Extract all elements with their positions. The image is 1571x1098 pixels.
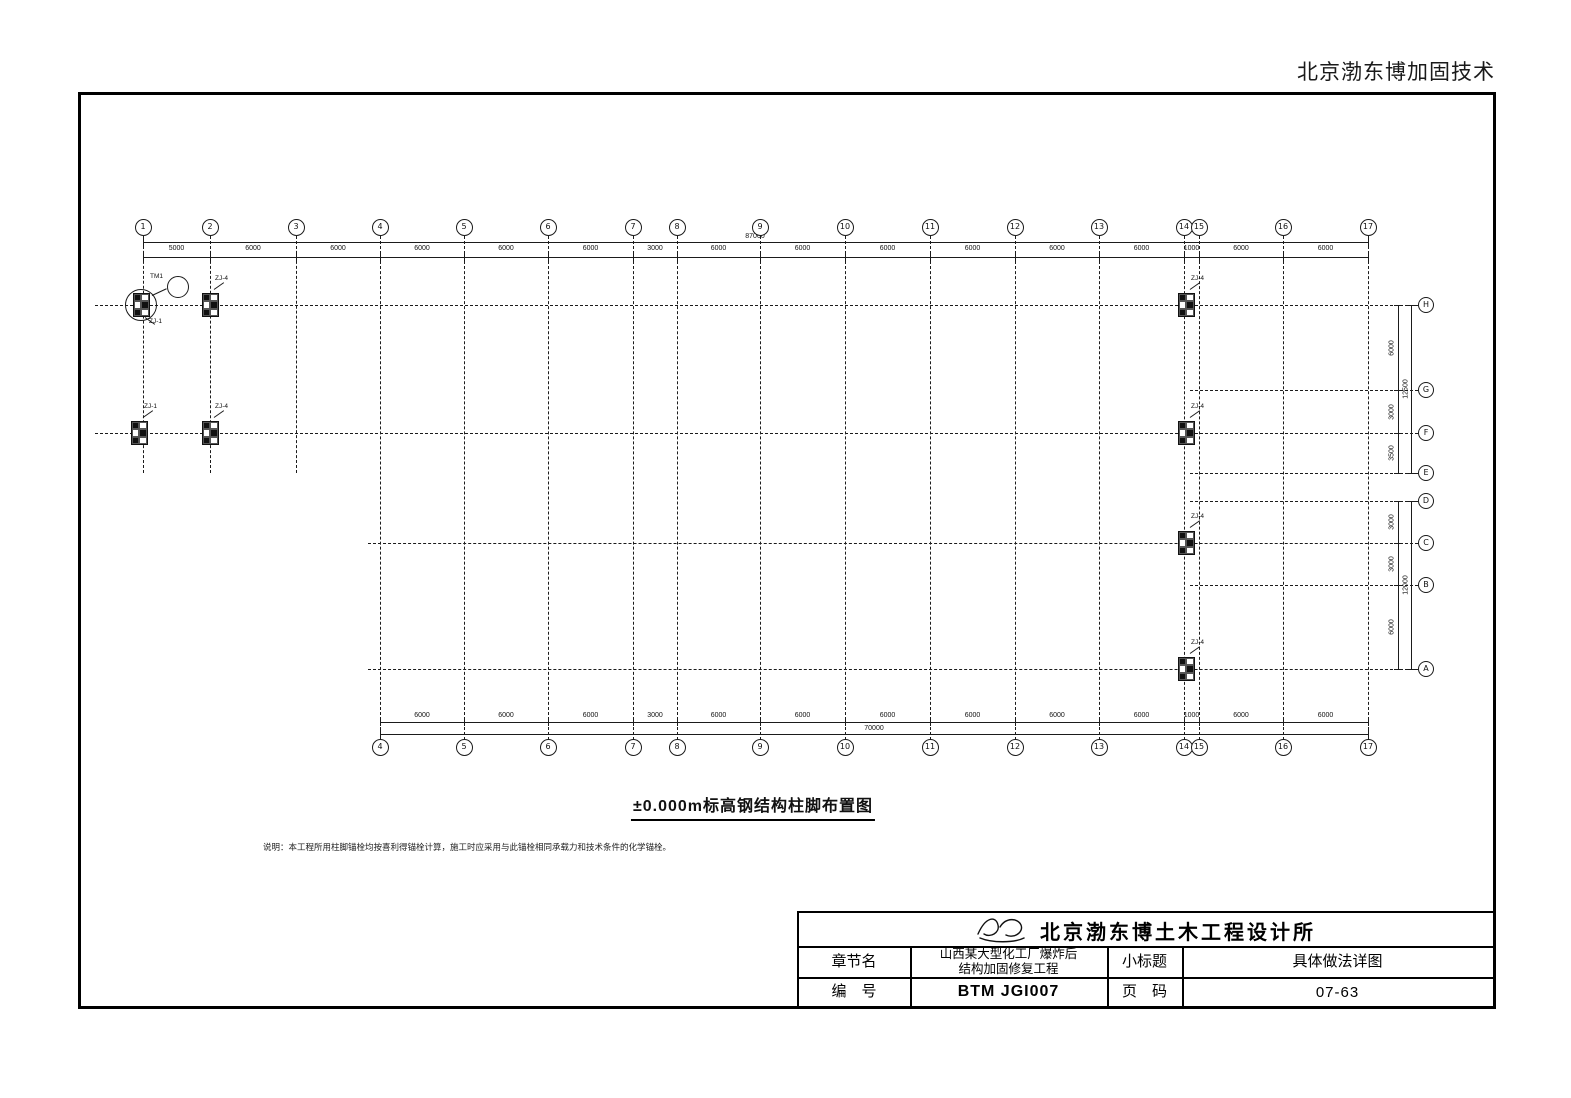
grid-bubble-row-B: B bbox=[1418, 577, 1434, 593]
base-plate-cell bbox=[1179, 665, 1187, 672]
titleblock-number-label: 编 号 bbox=[799, 978, 909, 1006]
right-dim-lower-tick bbox=[1394, 543, 1402, 544]
grid-bubble-top-2: 2 bbox=[202, 219, 219, 236]
grid-bubble-row-E: E bbox=[1418, 465, 1434, 481]
grid-line-row-D bbox=[1190, 501, 1418, 502]
base-plate-cell bbox=[1186, 301, 1194, 308]
grid-bubble-bottom-10: 10 bbox=[837, 739, 854, 756]
base-plate-cell bbox=[1179, 539, 1187, 546]
grid-bubble-bottom-16: 16 bbox=[1275, 739, 1292, 756]
base-plate-cell bbox=[203, 429, 211, 436]
base-plate-cell bbox=[1179, 658, 1187, 665]
bottom-dim-segment-line bbox=[380, 722, 1368, 723]
bottom-dim-tick bbox=[677, 718, 678, 726]
bottom-dim-tick bbox=[930, 718, 931, 726]
grid-line-column-12 bbox=[1015, 236, 1016, 740]
right-dim-upper-tick bbox=[1394, 305, 1402, 306]
grid-bubble-top-3: 3 bbox=[288, 219, 305, 236]
base-plate-cell bbox=[203, 309, 211, 316]
right-dim-upper-total-line bbox=[1411, 305, 1412, 473]
base-plate-cell bbox=[1186, 422, 1194, 429]
grid-line-column-11 bbox=[930, 236, 931, 740]
top-dim-tick bbox=[1283, 253, 1284, 261]
top-dim-end-tick bbox=[1368, 238, 1369, 246]
project-line-1: 山西某大型化工厂爆炸后 bbox=[940, 947, 1078, 962]
grid-line-column-16 bbox=[1283, 236, 1284, 740]
right-dim-lower-total-label: 12000 bbox=[1403, 575, 1410, 594]
grid-bubble-bottom-11: 11 bbox=[922, 739, 939, 756]
grid-bubble-top-10: 10 bbox=[837, 219, 854, 236]
base-plate-cell bbox=[1186, 294, 1194, 301]
grid-line-column-13 bbox=[1099, 236, 1100, 740]
top-dim-tick bbox=[930, 253, 931, 261]
top-dim-segment-label: 6000 bbox=[498, 245, 514, 252]
drawing-title: ±0.000m标高钢结构柱脚布置图 bbox=[631, 792, 875, 821]
base-plate-cell bbox=[203, 294, 211, 301]
base-plate-cell bbox=[1179, 547, 1187, 554]
grid-bubble-top-7: 7 bbox=[625, 219, 642, 236]
right-dim-lower-segment-label: 3000 bbox=[1389, 556, 1396, 572]
top-dim-segment-label: 1000 bbox=[1184, 245, 1200, 252]
titleblock-top-line bbox=[797, 911, 1493, 913]
top-dim-segment-label: 6000 bbox=[965, 245, 981, 252]
base-plate-cell bbox=[1186, 532, 1194, 539]
grid-line-column-5 bbox=[464, 236, 465, 740]
titleblock-page-label: 页 码 bbox=[1109, 978, 1180, 1006]
grid-bubble-top-5: 5 bbox=[456, 219, 473, 236]
grid-bubble-row-C: C bbox=[1418, 535, 1434, 551]
base-plate-cell bbox=[132, 437, 140, 444]
right-dim-upper-end-tick bbox=[1407, 473, 1415, 474]
grid-bubble-bottom-6: 6 bbox=[540, 739, 557, 756]
right-dim-upper-tick bbox=[1394, 433, 1402, 434]
base-plate-cell bbox=[1186, 539, 1194, 546]
grid-bubble-bottom-4: 4 bbox=[372, 739, 389, 756]
bottom-dim-segment-label: 6000 bbox=[711, 712, 727, 719]
bottom-dim-segment-label: 6000 bbox=[795, 712, 811, 719]
column-base-plate bbox=[1178, 293, 1195, 317]
grid-line-row-B bbox=[1190, 585, 1418, 586]
top-dim-segment-label: 6000 bbox=[880, 245, 896, 252]
bottom-dim-tick bbox=[1368, 718, 1369, 726]
grid-bubble-top-9: 9 bbox=[752, 219, 769, 236]
right-dim-lower-end-tick bbox=[1407, 669, 1415, 670]
plate-label: ZJ-4 bbox=[1191, 514, 1204, 521]
top-dim-tick bbox=[677, 253, 678, 261]
right-dim-lower-segment-label: 3000 bbox=[1389, 514, 1396, 530]
right-dim-upper-tick bbox=[1394, 473, 1402, 474]
project-line-2: 结构加固修复工程 bbox=[940, 962, 1078, 977]
plate-label: ZJ-1 bbox=[149, 319, 162, 326]
grid-line-column-8 bbox=[677, 236, 678, 740]
base-plate-cell bbox=[1186, 658, 1194, 665]
grid-bubble-row-D: D bbox=[1418, 493, 1434, 509]
right-dim-lower-total-line bbox=[1411, 501, 1412, 669]
bottom-dim-segment-label: 6000 bbox=[414, 712, 430, 719]
bottom-dim-tick bbox=[1283, 718, 1284, 726]
base-plate-cell bbox=[1186, 547, 1194, 554]
column-base-plate bbox=[202, 293, 219, 317]
grid-line-column-15 bbox=[1199, 236, 1200, 740]
column-base-plate bbox=[1178, 531, 1195, 555]
top-dim-tick bbox=[760, 253, 761, 261]
top-dim-segment-label: 6000 bbox=[583, 245, 599, 252]
grid-bubble-bottom-9: 9 bbox=[752, 739, 769, 756]
bottom-dim-tick bbox=[464, 718, 465, 726]
right-dim-upper-segment-label: 3000 bbox=[1389, 404, 1396, 420]
grid-line-column-6 bbox=[548, 236, 549, 740]
detail-callout-tag: TM1 bbox=[150, 274, 163, 281]
base-plate-cell bbox=[1186, 665, 1194, 672]
base-plate-cell bbox=[203, 301, 211, 308]
titleblock-project-name: 山西某大型化工厂爆炸后 结构加固修复工程 bbox=[912, 946, 1105, 977]
right-dim-upper-segment-label: 3500 bbox=[1389, 445, 1396, 461]
signature-logo bbox=[972, 912, 1034, 944]
base-plate-cell bbox=[210, 422, 218, 429]
top-dim-tick bbox=[464, 253, 465, 261]
base-plate-cell bbox=[1186, 309, 1194, 316]
titleblock-subtitle-value: 具体做法详图 bbox=[1184, 948, 1491, 976]
grid-bubble-row-A: A bbox=[1418, 661, 1434, 677]
titleblock-company-name: 北京渤东博土木工程设计所 bbox=[1040, 916, 1316, 945]
column-base-plate bbox=[1178, 421, 1195, 445]
base-plate-cell bbox=[139, 437, 147, 444]
top-dim-segment-label: 6000 bbox=[330, 245, 346, 252]
bottom-dim-segment-label: 6000 bbox=[1134, 712, 1150, 719]
drawing-note: 说明：本工程所用柱脚锚栓均按喜利得锚栓计算，施工时应采用与此锚栓相同承载力和技术… bbox=[263, 842, 671, 852]
base-plate-cell bbox=[1186, 437, 1194, 444]
base-plate-cell bbox=[1179, 422, 1187, 429]
grid-bubble-top-15: 15 bbox=[1191, 219, 1208, 236]
grid-bubble-top-13: 13 bbox=[1091, 219, 1108, 236]
top-dim-tick bbox=[1368, 253, 1369, 261]
base-plate-cell bbox=[210, 294, 218, 301]
bottom-dim-tick bbox=[380, 718, 381, 726]
base-plate-cell bbox=[210, 437, 218, 444]
grid-bubble-bottom-17: 17 bbox=[1360, 739, 1377, 756]
base-plate-cell bbox=[1186, 429, 1194, 436]
right-dim-upper-segment-line bbox=[1398, 305, 1399, 473]
base-plate-cell bbox=[210, 309, 218, 316]
right-dim-upper-end-tick bbox=[1407, 305, 1415, 306]
top-dim-end-tick bbox=[143, 238, 144, 246]
grid-line-column-10 bbox=[845, 236, 846, 740]
top-dim-tick bbox=[845, 253, 846, 261]
top-dim-segment-label: 6000 bbox=[795, 245, 811, 252]
base-plate-cell bbox=[1179, 294, 1187, 301]
base-plate-cell bbox=[132, 422, 140, 429]
top-dim-segment-label: 6000 bbox=[1233, 245, 1249, 252]
grid-bubble-bottom-5: 5 bbox=[456, 739, 473, 756]
right-dim-lower-tick bbox=[1394, 501, 1402, 502]
base-plate-cell bbox=[139, 429, 147, 436]
detail-callout-circle bbox=[167, 276, 189, 298]
top-dim-tick bbox=[1199, 253, 1200, 261]
top-dim-segment-label: 6000 bbox=[1318, 245, 1334, 252]
bottom-dim-total-label: 70000 bbox=[864, 725, 883, 732]
top-dim-segment-label: 5000 bbox=[169, 245, 185, 252]
titleblock-subtitle-label: 小标题 bbox=[1109, 948, 1180, 976]
grid-bubble-bottom-14: 14 bbox=[1176, 739, 1193, 756]
bottom-dim-tick bbox=[1015, 718, 1016, 726]
base-plate-cell bbox=[203, 422, 211, 429]
top-dim-segment-label: 6000 bbox=[1134, 245, 1150, 252]
grid-bubble-bottom-8: 8 bbox=[669, 739, 686, 756]
grid-bubble-top-6: 6 bbox=[540, 219, 557, 236]
top-dim-tick bbox=[143, 253, 144, 261]
titleblock-number-value: BTM JGI007 bbox=[912, 978, 1105, 1006]
top-dim-tick bbox=[1184, 253, 1185, 261]
base-plate-cell bbox=[203, 437, 211, 444]
bottom-dim-end-tick bbox=[380, 730, 381, 738]
bottom-dim-segment-label: 6000 bbox=[1318, 712, 1334, 719]
column-base-plate bbox=[1178, 657, 1195, 681]
top-dim-tick bbox=[210, 253, 211, 261]
top-dim-total-line bbox=[143, 242, 1368, 243]
bottom-dim-tick bbox=[1184, 718, 1185, 726]
base-plate-cell bbox=[1179, 673, 1187, 680]
grid-line-column-3 bbox=[296, 236, 297, 473]
grid-bubble-top-11: 11 bbox=[922, 219, 939, 236]
column-base-plate bbox=[131, 421, 148, 445]
top-dim-tick bbox=[1099, 253, 1100, 261]
plate-label: ZJ-4 bbox=[215, 276, 228, 283]
top-dim-segment-label: 3000 bbox=[647, 245, 663, 252]
right-dim-upper-tick bbox=[1394, 390, 1402, 391]
plate-label-leader bbox=[214, 282, 224, 290]
base-plate-cell bbox=[210, 429, 218, 436]
top-dim-segment-label: 6000 bbox=[245, 245, 261, 252]
plate-label-leader bbox=[143, 410, 153, 418]
column-base-plate bbox=[202, 421, 219, 445]
top-dim-tick bbox=[548, 253, 549, 261]
base-plate-cell bbox=[1179, 532, 1187, 539]
grid-line-row-G bbox=[1190, 390, 1418, 391]
grid-line-row-A bbox=[368, 669, 1418, 670]
right-dim-upper-segment-label: 6000 bbox=[1389, 340, 1396, 356]
bottom-dim-tick bbox=[1099, 718, 1100, 726]
plan-drawing: 1234455667788991010111112121313141415151… bbox=[0, 0, 1571, 1098]
top-dim-segment-label: 6000 bbox=[414, 245, 430, 252]
bottom-dim-segment-label: 3000 bbox=[647, 712, 663, 719]
grid-bubble-top-4: 4 bbox=[372, 219, 389, 236]
grid-bubble-top-12: 12 bbox=[1007, 219, 1024, 236]
bottom-dim-segment-label: 6000 bbox=[965, 712, 981, 719]
bottom-dim-total-line bbox=[380, 734, 1368, 735]
bottom-dim-tick bbox=[760, 718, 761, 726]
bottom-dim-tick bbox=[845, 718, 846, 726]
right-dim-upper-total-label: 12500 bbox=[1403, 379, 1410, 398]
titleblock-page-value: 07-63 bbox=[1184, 978, 1491, 1006]
bottom-dim-end-tick bbox=[1368, 730, 1369, 738]
base-plate-cell bbox=[132, 429, 140, 436]
grid-bubble-top-17: 17 bbox=[1360, 219, 1377, 236]
grid-line-column-9 bbox=[760, 236, 761, 740]
right-dim-lower-end-tick bbox=[1407, 501, 1415, 502]
right-dim-lower-tick bbox=[1394, 585, 1402, 586]
right-dim-lower-segment-label: 6000 bbox=[1389, 619, 1396, 635]
bottom-dim-segment-label: 6000 bbox=[583, 712, 599, 719]
top-dim-segment-label: 6000 bbox=[1049, 245, 1065, 252]
top-dim-tick bbox=[633, 253, 634, 261]
plate-label: ZJ-4 bbox=[215, 404, 228, 411]
bottom-dim-segment-label: 6000 bbox=[498, 712, 514, 719]
plate-label: ZJ-1 bbox=[144, 404, 157, 411]
bottom-dim-segment-label: 6000 bbox=[1233, 712, 1249, 719]
top-dim-tick bbox=[1015, 253, 1016, 261]
plate-label: ZJ-4 bbox=[1191, 276, 1204, 283]
base-plate-cell bbox=[1179, 309, 1187, 316]
base-plate-cell bbox=[1179, 429, 1187, 436]
top-dim-tick bbox=[296, 253, 297, 261]
bottom-dim-segment-label: 6000 bbox=[1049, 712, 1065, 719]
plate-label: ZJ-4 bbox=[1191, 640, 1204, 647]
grid-line-row-C bbox=[368, 543, 1418, 544]
grid-bubble-bottom-12: 12 bbox=[1007, 739, 1024, 756]
grid-bubble-bottom-7: 7 bbox=[625, 739, 642, 756]
plate-label: ZJ-4 bbox=[1191, 404, 1204, 411]
base-plate-cell bbox=[139, 422, 147, 429]
grid-line-column-7 bbox=[633, 236, 634, 740]
plate-highlight-circle bbox=[125, 289, 157, 321]
base-plate-cell bbox=[1179, 301, 1187, 308]
grid-bubble-bottom-15: 15 bbox=[1191, 739, 1208, 756]
bottom-dim-tick bbox=[633, 718, 634, 726]
base-plate-cell bbox=[1179, 437, 1187, 444]
bottom-dim-segment-label: 1000 bbox=[1184, 712, 1200, 719]
grid-line-row-F bbox=[95, 433, 1418, 434]
grid-bubble-bottom-13: 13 bbox=[1091, 739, 1108, 756]
grid-bubble-top-8: 8 bbox=[669, 219, 686, 236]
top-dim-segment-label: 6000 bbox=[711, 245, 727, 252]
titleblock-chapter-label: 章节名 bbox=[799, 948, 909, 976]
grid-line-row-E bbox=[1190, 473, 1418, 474]
grid-bubble-row-F: F bbox=[1418, 425, 1434, 441]
right-dim-lower-tick bbox=[1394, 669, 1402, 670]
plate-label-leader bbox=[214, 410, 224, 418]
sheet-canvas: 北京渤东博加固技术 123445566778899101011111212131… bbox=[0, 0, 1571, 1098]
grid-bubble-top-16: 16 bbox=[1275, 219, 1292, 236]
bottom-dim-segment-label: 6000 bbox=[880, 712, 896, 719]
grid-bubble-row-G: G bbox=[1418, 382, 1434, 398]
bottom-dim-tick bbox=[1199, 718, 1200, 726]
grid-line-column-17 bbox=[1368, 236, 1369, 740]
grid-bubble-top-1: 1 bbox=[135, 219, 152, 236]
grid-bubble-top-14: 14 bbox=[1176, 219, 1193, 236]
base-plate-cell bbox=[1186, 673, 1194, 680]
grid-line-row-H bbox=[95, 305, 1418, 306]
grid-line-column-4 bbox=[380, 236, 381, 740]
top-dim-tick bbox=[380, 253, 381, 261]
base-plate-cell bbox=[210, 301, 218, 308]
grid-bubble-row-H: H bbox=[1418, 297, 1434, 313]
bottom-dim-tick bbox=[548, 718, 549, 726]
